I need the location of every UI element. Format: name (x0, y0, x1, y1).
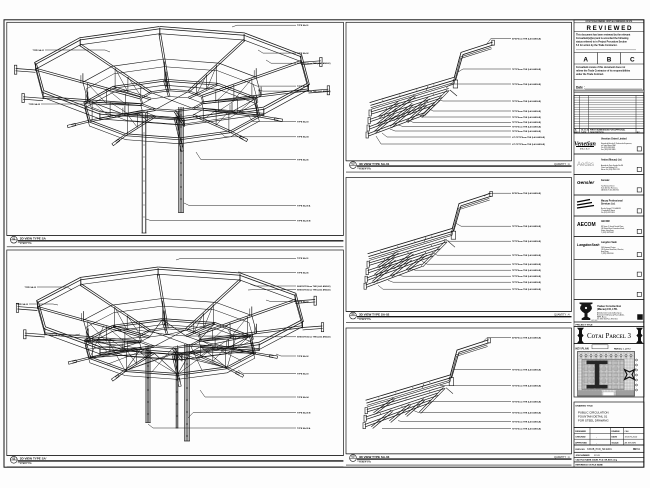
svg-text:TYPE SA-05 A: TYPE SA-05 A (297, 204, 311, 207)
svg-text:TYPE SA-03: TYPE SA-03 (17, 303, 29, 306)
svg-text:Estrada da Baia de N. Senhora: Estrada da Baia de N. Senhora de Esperan… (601, 142, 632, 145)
svg-text:Tel: (853) 2871 8855: Tel: (853) 2871 8855 (601, 212, 615, 214)
svg-text:T: (852) 2830 3500: T: (852) 2830 3500 (601, 253, 614, 255)
svg-text:75*75*6mm THK (L&G ANGLE): 75*75*6mm THK (L&G ANGLE) (512, 369, 541, 372)
svg-text:75*75*6mm THK (L&G ANGLE): 75*75*6mm THK (L&G ANGLE) (512, 401, 541, 404)
svg-text:TYPE SA-03: TYPE SA-03 (49, 334, 61, 337)
svg-text:AECOM: AECOM (577, 222, 596, 228)
svg-text:REFERENCE ON FILE NAME: REFERENCE ON FILE NAME (576, 464, 604, 467)
svg-text:75*75*6mm THK (L&G ANGLE): 75*75*6mm THK (L&G ANGLE) (512, 125, 541, 128)
svg-text:75*75*6mm THK (L&G ANGLE): 75*75*6mm THK (L&G ANGLE) (512, 428, 541, 431)
svg-text:75*75*6mm THK (L&G ANGLE): 75*75*6mm THK (L&G ANGLE) (512, 269, 541, 272)
svg-text:Langdon Seah: Langdon Seah (601, 242, 617, 244)
svg-text:Gensler: Gensler (601, 180, 610, 182)
svg-text:75*75*6mm THK (L&G ANGLE): 75*75*6mm THK (L&G ANGLE) (512, 385, 541, 388)
svg-text:50*50*6mm THK (L&G ANGLE): 50*50*6mm THK (L&G ANGLE) (512, 192, 541, 195)
svg-text:TYPE SA-02: TYPE SA-02 (297, 85, 309, 88)
svg-text:Alameda Dutor Carlos D,Assumpc: Alameda Dutor Carlos D,Assumpcao (597, 312, 622, 315)
svg-text:TYPE SA-02: TYPE SA-02 (29, 103, 41, 106)
svg-text:APPROVED: APPROVED (575, 442, 587, 445)
svg-text:L75 75*75*6mm THK (L&G ANGLE): L75 75*75*6mm THK (L&G ANGLE) (512, 143, 545, 146)
svg-text:75*75*6mm THK (L&G ANGLE): 75*75*6mm THK (L&G ANGLE) (512, 100, 541, 103)
svg-text:under the Trade Contract.: under the Trade Contract. (576, 73, 604, 76)
svg-text:Aedas: Aedas (577, 162, 594, 168)
svg-text:REV A: REV A (633, 448, 640, 451)
svg-text:3D VIEW TYPE SA-03: 3D VIEW TYPE SA-03 (359, 455, 390, 459)
svg-text:75*75*6mm THK (L&G ANGLE): 75*75*6mm THK (L&G ANGLE) (512, 240, 541, 243)
svg-text:Cᴏᴛᴀɪ Pᴀʀᴄᴇʟ 3: Cᴏᴛᴀɪ Pᴀʀᴄᴇʟ 3 (587, 332, 631, 340)
svg-text:TYPE SA-02: TYPE SA-02 (297, 301, 309, 304)
svg-text:FOR STEEL DRAWING: FOR STEEL DRAWING (578, 419, 609, 423)
svg-text:75*75*6mm THK (L&G ANGLE): 75*75*6mm THK (L&G ANGLE) (512, 254, 541, 257)
svg-text:Tel: 2870 3313 Fax: 2870 331: Tel: 2870 3313 Fax: 2870 3311 (597, 319, 618, 321)
svg-text:TYPE SA-01: TYPE SA-01 (297, 24, 309, 27)
svg-text:TYPE SA-02: TYPE SA-02 (297, 355, 309, 358)
svg-text:CAD: CAD (625, 430, 630, 433)
svg-text:QUANTITY : 4: QUANTITY : 4 (554, 313, 570, 316)
svg-text:QUANTITY : 4: QUANTITY : 4 (554, 456, 570, 459)
svg-text:Date :: Date : (576, 86, 585, 90)
svg-text:DATE: DATE (612, 436, 618, 439)
svg-text:MACAO: MACAO (580, 148, 590, 151)
svg-text:75*75*6mm THK (L&G ANGLE): 75*75*6mm THK (L&G ANGLE) (512, 83, 541, 86)
svg-text:DATE: DATE (581, 131, 587, 134)
svg-text:This document has been reviewe: This document has been reviewed by the r… (576, 34, 630, 37)
svg-text:(Macau) CO, LTD.: (Macau) CO, LTD. (597, 308, 618, 311)
svg-text:Macau Tel: (853) 2833 1133: Macau Tel: (853) 2833 1133 (601, 169, 620, 171)
svg-text:B: B (607, 57, 612, 64)
svg-text:Hong Kong: Hong Kong (601, 251, 609, 253)
svg-text:KEY PLAN: KEY PLAN (576, 347, 589, 351)
svg-text:Aedas (Macau) Ltd.: Aedas (Macau) Ltd. (601, 159, 622, 162)
svg-text:SCALE: SCALE (612, 442, 620, 445)
svg-text:relieve the Trade Contractor o: relieve the Trade Contractor of its resp… (576, 69, 631, 72)
svg-text:Rua de Xangai 175, Edf ACM: Rua de Xangai 175, Edf ACM (601, 207, 621, 210)
svg-text:3D VIEW TYPE SA-01: 3D VIEW TYPE SA-01 (359, 162, 390, 166)
svg-text:TYPE SA-05: TYPE SA-05 (297, 159, 309, 162)
svg-text:75*75*6mm THK (L&G ANGLE): 75*75*6mm THK (L&G ANGLE) (512, 225, 541, 228)
svg-text:SHS150*150mm THK (L&G ANGLE): SHS150*150mm THK (L&G ANGLE) (297, 289, 331, 292)
svg-text:75*75*6mm THK (L&G ANGLE): 75*75*6mm THK (L&G ANGLE) (512, 288, 541, 291)
svg-text:Services Ltd.: Services Ltd. (601, 202, 616, 205)
svg-text:DRAWN: DRAWN (612, 430, 620, 433)
svg-text:TYPE SA-02: TYPE SA-02 (297, 52, 309, 55)
svg-text:TYPE SA-05 B: TYPE SA-05 B (297, 412, 311, 415)
svg-text:A: A (583, 57, 588, 64)
svg-text:JOB NUMBER: JOB NUMBER (576, 455, 590, 457)
svg-text:75*75*6mm THK (L&G ANGLE): 75*75*6mm THK (L&G ANGLE) (512, 68, 541, 71)
svg-text:DO NOT SCALE DRAWING. VERIFY A: DO NOT SCALE DRAWING. VERIFY ALL DIMENSI… (586, 20, 633, 23)
svg-text:50*50*6mm THK (L&G ANGLE): 50*50*6mm THK (L&G ANGLE) (512, 337, 541, 340)
svg-text:75*75*6mm THK (L&G ANGLE): 75*75*6mm THK (L&G ANGLE) (512, 412, 541, 415)
svg-text:TYPE SA-05: TYPE SA-05 (297, 271, 309, 274)
svg-text:Two Harrison Street: Two Harrison Street (601, 185, 615, 188)
svg-text:19-NOV-2010: 19-NOV-2010 (625, 437, 639, 439)
svg-text:75*75*6mm THK (L&G ANGLE): 75*75*6mm THK (L&G ANGLE) (512, 121, 541, 124)
svg-text:status referred to in Project: status referred to in Project Procedure … (576, 41, 628, 44)
svg-text:PARCEL 1, LOT 2: PARCEL 1, LOT 2 (614, 348, 631, 351)
svg-text:Venetian Orient Limited: Venetian Orient Limited (601, 138, 627, 141)
svg-text:SHS150*150mm THK (L&G ANGLE): SHS150*150mm THK (L&G ANGLE) (297, 62, 331, 65)
svg-text:75*75*6mm THK (L&G ANGLE): 75*75*6mm THK (L&G ANGLE) (512, 130, 541, 133)
svg-text:TYPE SA-02: TYPE SA-02 (25, 286, 37, 289)
svg-text:75*75*6mm THK (L&G ANGLE): 75*75*6mm THK (L&G ANGLE) (512, 275, 541, 278)
svg-text:DRAWING TITLE: DRAWING TITLE (576, 404, 594, 407)
svg-text:TYPE SA-03: TYPE SA-03 (297, 121, 309, 124)
svg-text:C: C (630, 57, 635, 64)
svg-text:75*75*6mm THK (L&G ANGLE): 75*75*6mm THK (L&G ANGLE) (512, 116, 541, 119)
svg-text:TYPE SA-01: TYPE SA-01 (33, 49, 45, 52)
svg-text:CHECKED: CHECKED (575, 437, 586, 439)
svg-text:Gensler: Gensler (577, 180, 594, 185)
svg-text:TYPE SA-01: TYPE SA-01 (297, 257, 309, 260)
svg-text:China Law Building 21/F,: China Law Building 21/F, (601, 167, 618, 169)
svg-text:-: - (596, 437, 597, 439)
svg-text:TYPE SA-04: TYPE SA-04 (297, 396, 309, 399)
svg-text:SHS150*150mm THK (L&G ANGLE): SHS150*150mm THK (L&G ANGLE) (297, 90, 331, 93)
svg-text:SHS150*150mm THK (L&G ANGLE): SHS150*150mm THK (L&G ANGLE) (297, 336, 331, 339)
svg-text:QUANTITY : 4: QUANTITY : 4 (554, 163, 570, 166)
svg-text:DESIGNED: DESIGNED (575, 431, 586, 433)
svg-text:R E V I E W E D: R E V I E W E D (586, 25, 632, 32)
svg-text:CAD FILE NAME 315UB_PCD_SR-: CAD FILE NAME 315UB_PCD_SR-E001.dwg (576, 459, 618, 462)
svg-text:AECOM: AECOM (601, 220, 610, 223)
svg-text:5.4 for action by the Trade Co: 5.4 for action by the Trade Contractor. (576, 44, 618, 47)
svg-text:31528: 31528 (594, 455, 601, 457)
svg-text:TYPE SA-04: TYPE SA-04 (297, 136, 309, 139)
svg-text:AS SHOWN: AS SHOWN (625, 442, 637, 445)
svg-text:Fax: (853) 2882 8889: Fax: (853) 2882 8889 (601, 149, 616, 151)
svg-text:75*75*6mm THK (L&G ANGLE): 75*75*6mm THK (L&G ANGLE) (512, 110, 541, 113)
svg-text:Tel: (853) 2882 8888: Tel: (853) 2882 8888 (601, 147, 615, 149)
svg-text:DWG NO: DWG NO (576, 449, 586, 451)
svg-text:Avenida da Praia Grande No.409: Avenida da Praia Grande No.409 (601, 164, 623, 167)
svg-text:Macau Professional: Macau Professional (601, 201, 623, 203)
svg-text:PROJECT TITLE: PROJECT TITLE (576, 324, 594, 326)
svg-text:Consultant(s)(ies) and is acco: Consultant(s)(ies) and is accorded the f… (576, 37, 629, 40)
svg-text:50*50*6mm THK (L&G ANGLE): 50*50*6mm THK (L&G ANGLE) (512, 37, 541, 40)
svg-text:SHS150*150mm THK (L&G ANGLE): SHS150*150mm THK (L&G ANGLE) (297, 285, 331, 288)
svg-text:75*75*6mm THK (L&G ANGLE): 75*75*6mm THK (L&G ANGLE) (512, 263, 541, 266)
svg-text:75*75*6mm THK (L&G ANGLE): 75*75*6mm THK (L&G ANGLE) (512, 281, 541, 284)
svg-text:Consultant review of this docu: Consultant review of this document does … (576, 66, 625, 69)
svg-text:L75 75*75*6mm THK (L&G ANGLE): L75 75*75*6mm THK (L&G ANGLE) (512, 136, 545, 139)
svg-text:-: - (596, 443, 597, 445)
svg-text:T: (852) 3922 9000: T: (852) 3922 9000 (601, 232, 614, 234)
svg-text:TYPE SA-03: TYPE SA-03 (297, 372, 309, 375)
svg-text:3D VIEW TYPE SA-02: 3D VIEW TYPE SA-02 (359, 312, 390, 316)
svg-text:20/F Hopewell Centre,: 20/F Hopewell Centre, (601, 246, 617, 249)
svg-text:LangdonSeah: LangdonSeah (577, 243, 599, 247)
svg-text:75*75*6mm THK (L&G ANGLE): 75*75*6mm THK (L&G ANGLE) (512, 421, 541, 424)
svg-text:TYPE SA-05 A: TYPE SA-05 A (297, 427, 311, 430)
svg-text:TYPE SA-05 B: TYPE SA-05 B (297, 220, 311, 223)
svg-text:3D VIEW TYPE SA: 3D VIEW TYPE SA (20, 237, 47, 241)
svg-text:315UB_PCD_SR-E001: 315UB_PCD_SR-E001 (587, 448, 612, 451)
svg-text:3D VIEW TYPE SA': 3D VIEW TYPE SA' (20, 457, 47, 461)
svg-text:8/F Tower 2, Grand Central Pla: 8/F Tower 2, Grand Central Plaza, (601, 225, 624, 228)
